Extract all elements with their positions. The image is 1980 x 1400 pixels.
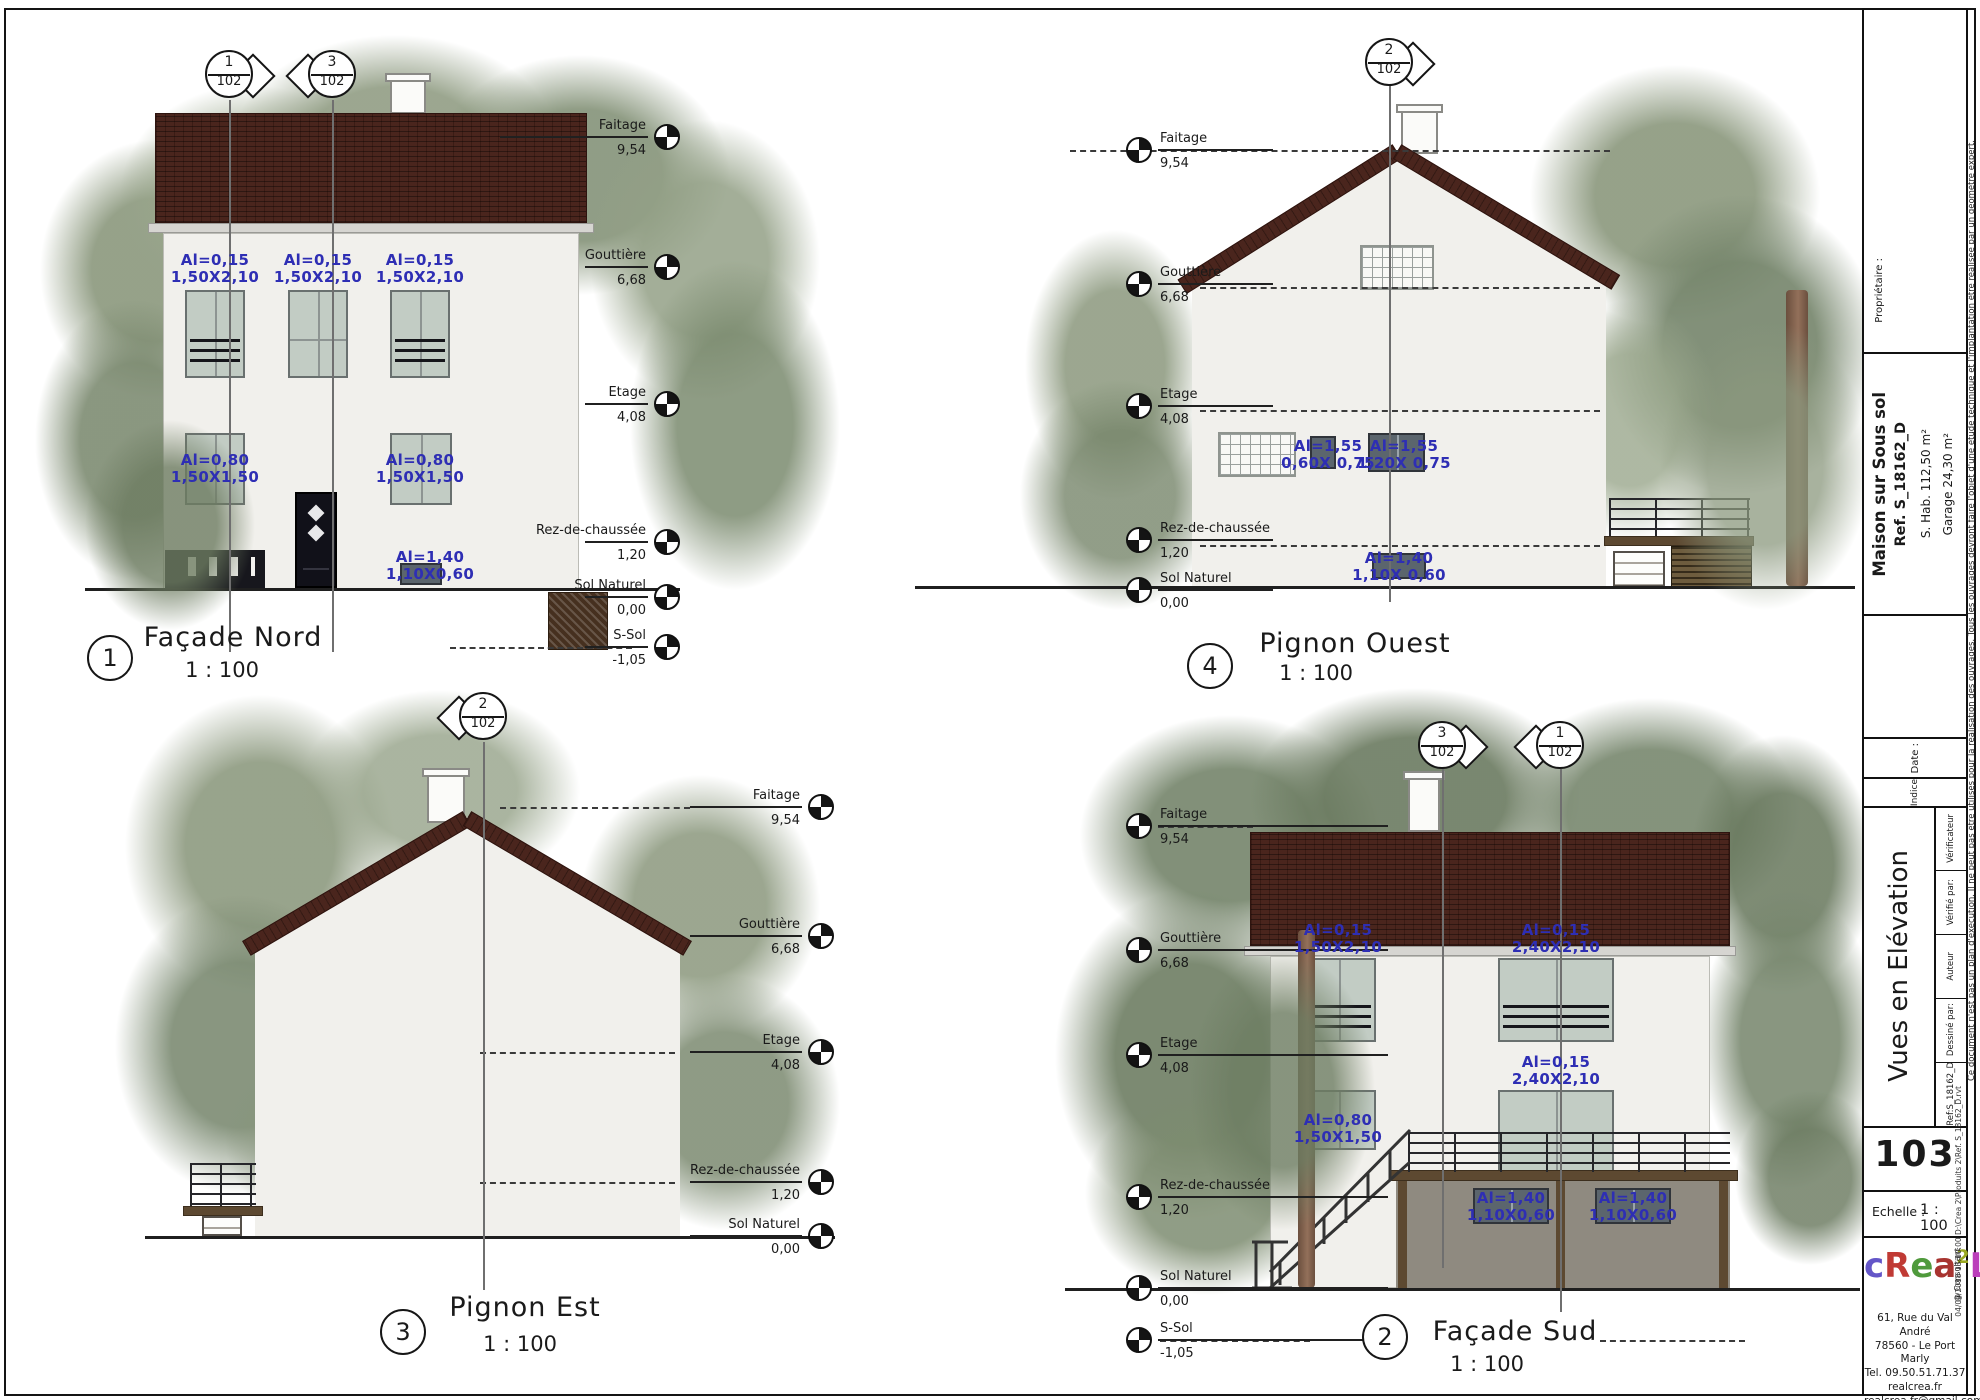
section-marker: 2102: [1365, 38, 1413, 86]
view-number: 2: [1362, 1314, 1408, 1360]
railing-posts: [190, 1163, 256, 1208]
roof: [155, 113, 587, 223]
window-annotation: Al=0,151,50X2,10: [274, 252, 362, 285]
dashed-line: [1200, 287, 1600, 289]
railing-posts: [1408, 1132, 1730, 1172]
section-line: [483, 742, 485, 1290]
section-marker: 3102: [308, 50, 356, 98]
role-verifie-par: Vérifié par:: [1936, 870, 1966, 935]
section-marker: 1102: [205, 50, 253, 98]
window-annotation: Al=0,801,50X1,50: [376, 452, 464, 485]
ssol-dashed-line: [1600, 1340, 1745, 1342]
datum-icon: [654, 124, 680, 150]
project-shab: S. Hab. 112,50 m²: [1914, 354, 1938, 614]
section-marker: 3102: [1418, 721, 1466, 769]
echelle-label: Echelle :: [1872, 1204, 1925, 1219]
datum-icon: [1126, 577, 1152, 603]
section-line: [1560, 769, 1562, 1312]
view-title: Façade Nord: [144, 622, 323, 653]
window-annotation: Al=0,151,50X2,10: [376, 252, 464, 285]
chimney: [390, 80, 426, 114]
tree-foliage: [1660, 320, 1870, 610]
window-annotation: Al=0,152,40X2,10: [1512, 1054, 1600, 1087]
window-annotation: Al=0,151,50X2,10: [171, 252, 259, 285]
section-line: [1389, 86, 1391, 602]
datum-icon: [654, 254, 680, 280]
datum-icon: [1126, 393, 1152, 419]
chimney-cap: [385, 73, 431, 82]
window-annotation: Al=0,801,50X1,50: [1294, 1112, 1382, 1145]
entry-door: [295, 492, 337, 588]
role-verificateur: Vérificateur: [1936, 806, 1966, 871]
file-info-text: 04/09/2018 13:10:00 D:\Crea 2\Produits 2…: [1953, 1010, 1964, 1392]
proprietaire-label: Propriétaire :: [1864, 210, 1894, 370]
sheet-number: 103: [1864, 1134, 1966, 1175]
datum-icon: [1126, 271, 1152, 297]
datum-icon: [808, 1223, 834, 1249]
window-annotation: Al=0,151,50X2,10: [1294, 922, 1382, 955]
view-scale: 1 : 100: [1450, 1352, 1524, 1376]
section-marker: 2102: [459, 692, 507, 740]
datum-icon: [808, 923, 834, 949]
logo: cRea2L: [1864, 1246, 1950, 1286]
datum-icon: [1126, 1327, 1152, 1353]
view-title: Pignon Ouest: [1259, 628, 1450, 659]
view-title: Pignon Est: [449, 1292, 600, 1323]
window: [390, 290, 450, 378]
chimney: [1408, 778, 1440, 832]
datum-icon: [654, 584, 680, 610]
window-annotation: Al=1,401,10X0,60: [1589, 1190, 1677, 1223]
chimney-cap: [422, 768, 470, 777]
deck-edge: [183, 1206, 263, 1216]
disclaimer-text: Ce document n'est pas un plan d'exécutio…: [1966, 70, 1978, 1150]
datum-icon: [808, 1169, 834, 1195]
datum-icon: [654, 634, 680, 660]
view-number: 3: [380, 1309, 426, 1355]
datum-icon: [808, 794, 834, 820]
window-annotation: Al=1,551,20X 0,75: [1357, 438, 1451, 471]
view-number: 1: [87, 635, 133, 681]
view-scale: 1 : 100: [483, 1332, 557, 1356]
chimney-cap: [1403, 771, 1445, 780]
dashed-line: [500, 807, 690, 809]
section-marker: 1102: [1536, 721, 1584, 769]
section-line: [1442, 769, 1444, 1268]
datum-icon: [1126, 1184, 1152, 1210]
date-label: Date :: [1864, 739, 1966, 777]
deck-post: [1719, 1180, 1728, 1288]
service-door: [1613, 551, 1665, 587]
datum-icon: [1126, 937, 1152, 963]
dashed-line: [1200, 545, 1600, 547]
view-number: 4: [1187, 643, 1233, 689]
window: [185, 290, 245, 378]
window-annotation: Al=1,401,10X0,60: [386, 549, 474, 582]
view-scale: 1 : 100: [1279, 661, 1353, 685]
project-ref: Ref. S_18162_D: [1888, 354, 1914, 614]
window-annotation: Al=1,401,10X 0,60: [1352, 550, 1446, 583]
window: [1498, 958, 1614, 1042]
view-title: Façade Sud: [1433, 1316, 1598, 1347]
datum-icon: [654, 391, 680, 417]
window-annotation: Al=0,801,50X1,50: [171, 452, 259, 485]
window-annotation: Al=0,152,40X2,10: [1512, 922, 1600, 955]
stairs: [202, 1216, 242, 1236]
indice-label: Indice: [1864, 779, 1966, 806]
view-scale: 1 : 100: [185, 658, 259, 682]
datum-icon: [1126, 813, 1152, 839]
section-line: [229, 100, 231, 652]
attic-window: [1360, 245, 1434, 290]
datum-icon: [1126, 527, 1152, 553]
datum-icon: [808, 1039, 834, 1065]
datum-icon: [1126, 1275, 1152, 1301]
datum-icon: [1126, 137, 1152, 163]
dashed-line: [1200, 410, 1600, 412]
soil-section: [548, 592, 608, 650]
section-line: [332, 100, 334, 652]
dashed-line: [480, 1052, 675, 1054]
window: [288, 290, 348, 378]
window-annotation: Al=1,401,10X0,60: [1467, 1190, 1555, 1223]
datum-icon: [1126, 1042, 1152, 1068]
role-auteur: Auteur: [1936, 934, 1966, 999]
chimney-cap: [1396, 104, 1443, 113]
dashed-line: [480, 1182, 675, 1184]
project-garage: Garage 24,30 m²: [1936, 354, 1960, 614]
datum-icon: [654, 529, 680, 555]
drawing-title: Vues en Elévation: [1864, 806, 1934, 1126]
eave: [148, 223, 594, 233]
address: 61, Rue du Val André78560 - Le Port Marl…: [1864, 1312, 1966, 1400]
drawing-sheet: 1102 3102 Faitage9,54 Gouttière6,68 Etag…: [0, 0, 1980, 1400]
